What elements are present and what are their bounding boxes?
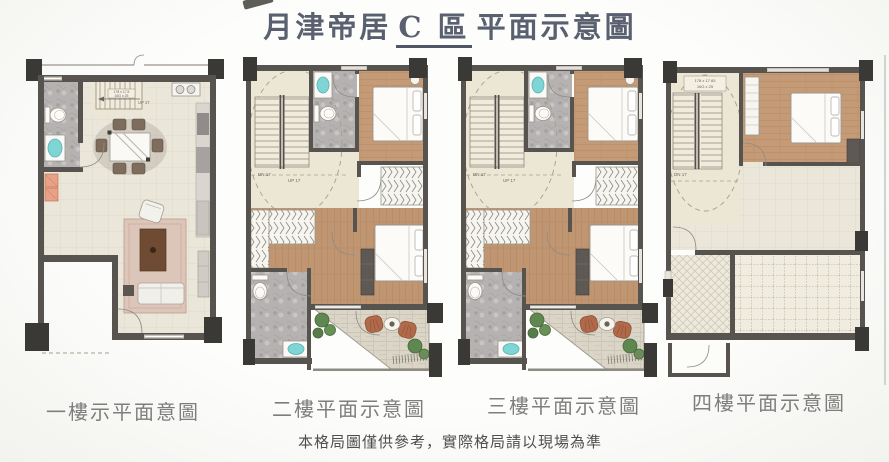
floor-plan-2 <box>243 53 455 379</box>
floor-plan-1: 178 x 17.5 16G x 25 UP 17 <box>12 55 234 387</box>
pillow <box>831 118 839 136</box>
appliance <box>196 147 210 173</box>
column <box>204 317 222 343</box>
dresser <box>847 139 860 163</box>
stair-dim-1: 178 x 17.65 <box>695 78 717 83</box>
dining-chair <box>152 139 163 152</box>
sink-icon <box>48 139 62 157</box>
column <box>663 279 673 297</box>
floor-2-plan-instance <box>243 57 443 377</box>
column <box>855 231 868 251</box>
floorplan-sheet: 月津帝居C 區平面示意圖 <box>0 0 889 462</box>
side-table <box>123 285 134 296</box>
gate-arc <box>134 55 144 65</box>
stair-up-label: UP 17 <box>138 100 150 105</box>
stair-dim-2: 16G x 25 <box>697 84 714 89</box>
appliance <box>197 201 209 235</box>
title-pre: 月津帝居 <box>263 10 391 44</box>
toilet-icon <box>50 108 66 122</box>
floor-plan-4: 178 x 17.65 16G x 25 DN 17 <box>663 55 875 380</box>
pillow <box>831 97 839 115</box>
floor-2-caption: 二樓平面示意圖 <box>243 393 455 422</box>
column <box>859 60 873 81</box>
dining-table <box>110 133 150 161</box>
annex <box>668 343 730 377</box>
column <box>663 61 677 83</box>
staircase: 178 x 17.5 16G x 25 UP 17 <box>96 81 150 109</box>
column <box>25 323 49 351</box>
appliance <box>197 113 209 135</box>
dining-chair <box>113 119 126 130</box>
dining-chair <box>132 163 145 174</box>
roof-terrace-floor <box>735 255 860 333</box>
closet <box>745 77 759 135</box>
floor-3-plan-instance <box>458 57 658 377</box>
column <box>855 327 869 351</box>
page-title: 月津帝居C 區平面示意圖 <box>250 4 650 46</box>
title-zone: C 區 <box>396 10 471 48</box>
dining-chair <box>113 163 126 174</box>
floor-plan-3 <box>458 53 670 379</box>
window <box>861 271 864 301</box>
floor-3-caption: 三樓平面示意圖 <box>458 390 670 419</box>
floor-4-caption: 四樓平面示意圖 <box>663 387 875 416</box>
window <box>861 111 864 139</box>
title-post: 平面示意圖 <box>477 10 637 44</box>
photo-edge-line <box>884 55 886 385</box>
disclaimer-note: 本格局圖僅供參考，實際格局請以現場為準 <box>250 431 650 452</box>
stair-dim-2: 16G x 25 <box>115 94 129 98</box>
tv-cabinet <box>198 251 209 297</box>
dining-chair <box>132 119 145 130</box>
floor-1-caption: 一樓示平面意圖 <box>12 396 234 425</box>
storage-room-floor <box>671 255 730 333</box>
stair-down-label: DN 17 <box>674 172 687 177</box>
dining-chair <box>96 139 107 152</box>
